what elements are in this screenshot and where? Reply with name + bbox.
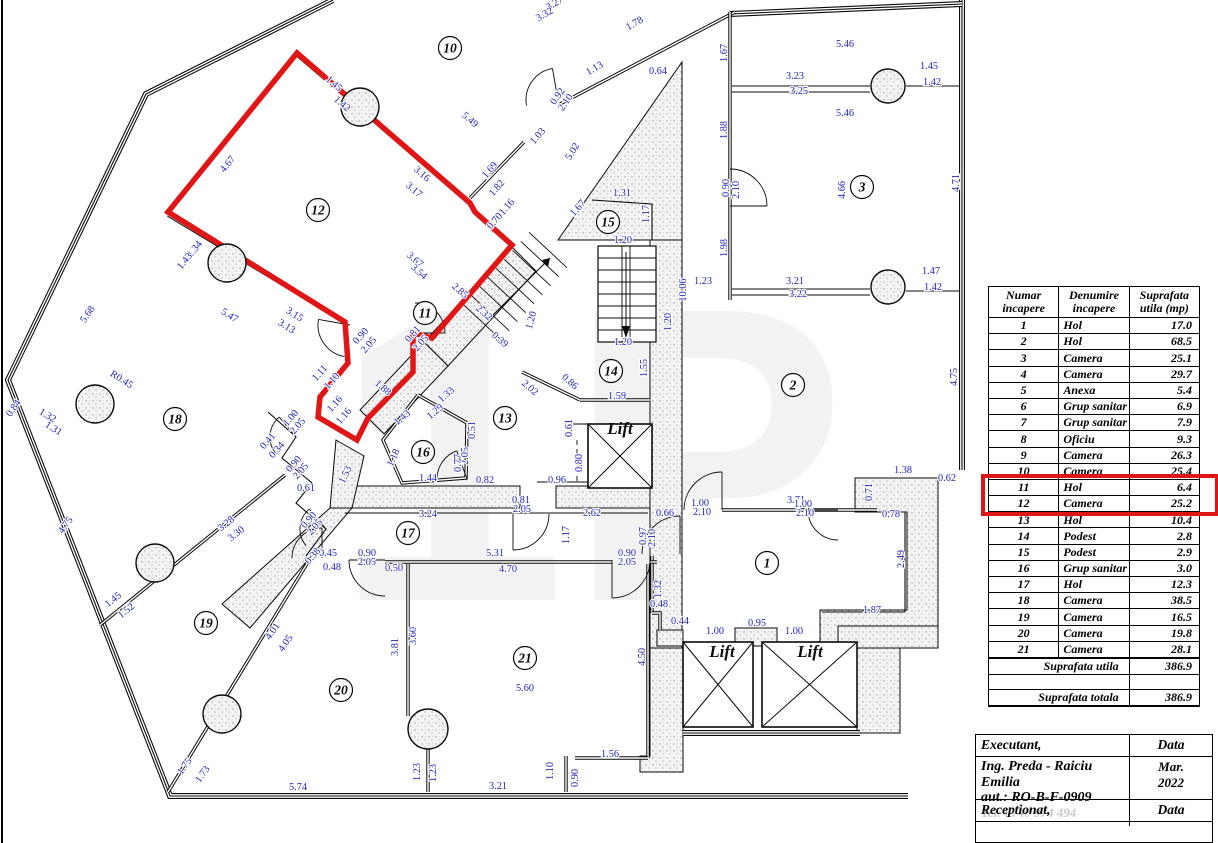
table-cell: 7 bbox=[989, 415, 1059, 431]
dimension-label: 1.23 bbox=[412, 763, 423, 781]
table-cell: 25.1 bbox=[1129, 350, 1199, 366]
dimension-label: 2.05 bbox=[358, 557, 376, 568]
dimension-label: 3.23 bbox=[786, 71, 804, 82]
dimension-label: 1.88 bbox=[719, 121, 730, 139]
table-cell: 10 bbox=[989, 463, 1059, 479]
receptionat-date-empty-cell bbox=[1130, 822, 1212, 826]
room-number: 12 bbox=[311, 203, 325, 218]
dimension-label: 0.77 bbox=[453, 454, 464, 472]
table-cell: 10.4 bbox=[1129, 512, 1199, 528]
dimension-label: 0.48 bbox=[650, 599, 668, 610]
dimension-label: 5.49 bbox=[459, 110, 480, 130]
table-total-row: Suprafata totala386.9 bbox=[989, 690, 1200, 707]
table-cell: Camera bbox=[1059, 609, 1129, 625]
dimension-label: 5.47 bbox=[219, 306, 240, 325]
dimension-label: 0.82 bbox=[476, 475, 494, 486]
table-cell: 16 bbox=[989, 560, 1059, 576]
table-cell: 13 bbox=[989, 512, 1059, 528]
dimension-label: 5.02 bbox=[563, 141, 582, 162]
table-cell: 14 bbox=[989, 528, 1059, 544]
lift-label: Lift bbox=[796, 642, 824, 661]
dimension-label: 0.50 bbox=[385, 563, 403, 574]
table-cell: Camera bbox=[1059, 366, 1129, 382]
table-cell: 9.3 bbox=[1129, 431, 1199, 447]
table-row: 4Camera29.7 bbox=[989, 366, 1200, 382]
table-cell: Camera bbox=[1059, 463, 1129, 479]
dimension-label: 1.17 bbox=[641, 205, 652, 223]
table-row: 20Camera19.8 bbox=[989, 625, 1200, 641]
dimension-label: 2.62 bbox=[583, 508, 601, 519]
dimension-label: 1.47 bbox=[922, 266, 940, 277]
table-row: 12Camera25.2 bbox=[989, 496, 1200, 512]
table-cell: Camera bbox=[1059, 641, 1129, 658]
dimension-label: 3.25 bbox=[790, 86, 808, 97]
dimension-label: 3.21 bbox=[786, 276, 804, 287]
dimension-label: 3.21 bbox=[489, 781, 507, 792]
dimension-label: 2.05 bbox=[513, 504, 531, 515]
dimension-label: 1.32 bbox=[653, 580, 664, 598]
dimension-label: 3.24 bbox=[419, 509, 437, 520]
date-value: Mar. 2022 bbox=[1130, 757, 1212, 799]
dimension-label: 3.17 bbox=[403, 180, 424, 200]
dimension-label: 0.61 bbox=[297, 483, 315, 494]
dimension-label: 1.78 bbox=[624, 15, 645, 34]
table-cell: 2 bbox=[989, 334, 1059, 350]
dimension-label: 4.50 bbox=[637, 648, 648, 666]
table-row: 5Anexa5.4 bbox=[989, 382, 1200, 398]
table-cell: 11 bbox=[989, 479, 1059, 495]
table-cell: Hol bbox=[1059, 512, 1129, 528]
dimension-label: 0.61 bbox=[564, 419, 575, 437]
dimension-label: 2.10 bbox=[647, 529, 658, 547]
room-number: 2 bbox=[789, 378, 797, 393]
floorplan-page: 1P1.451.425.493.163.174.671.341.433.153.… bbox=[0, 0, 1218, 843]
dimension-label: 1.20 bbox=[614, 337, 632, 348]
dimension-label: 0.96 bbox=[548, 475, 566, 486]
dimension-label: 1.17 bbox=[561, 526, 572, 544]
room-number: 17 bbox=[401, 526, 416, 541]
room-number: 18 bbox=[168, 412, 182, 427]
table-cell: 17.0 bbox=[1129, 318, 1199, 334]
dimension-label: 10.06 bbox=[678, 278, 689, 301]
dimension-label: 0.78 bbox=[882, 509, 900, 520]
table-row: 15Podest2.9 bbox=[989, 544, 1200, 560]
dimension-label: 5.60 bbox=[516, 683, 534, 694]
table-cell: 9 bbox=[989, 447, 1059, 463]
lift-label: Lift bbox=[708, 642, 736, 661]
title-block: Executant, Data Ing. Preda - Raiciu Emil… bbox=[975, 734, 1213, 843]
table-cell: 3.0 bbox=[1129, 560, 1199, 576]
dimension-label: 2.49 bbox=[896, 550, 907, 568]
dimension-label: 1.75 bbox=[175, 756, 194, 777]
dimension-label: 4.71 bbox=[951, 174, 962, 192]
table-cell: 1 bbox=[989, 318, 1059, 334]
dimension-label: 1.31 bbox=[43, 419, 64, 438]
table-cell: 7.9 bbox=[1129, 415, 1199, 431]
table-header-0: Numarincapere bbox=[989, 287, 1059, 318]
table-row: 7Grup sanitar7.9 bbox=[989, 415, 1200, 431]
dimension-label: 1.82 bbox=[487, 178, 507, 199]
dimension-label: 0.90 bbox=[570, 769, 581, 787]
table-cell: Camera bbox=[1059, 625, 1129, 641]
table-header-2: Suprafatautila (mp) bbox=[1129, 287, 1199, 318]
dimension-label: 0.64 bbox=[649, 66, 667, 77]
table-cell: Camera bbox=[1059, 593, 1129, 609]
dimension-label: 1.45 bbox=[920, 61, 938, 72]
table-cell: 38.5 bbox=[1129, 593, 1199, 609]
dimension-label: 0.80 bbox=[574, 454, 585, 472]
table-cell: Podest bbox=[1059, 544, 1129, 560]
table-cell: Camera bbox=[1059, 496, 1129, 512]
executant-label: Executant, bbox=[976, 735, 1130, 756]
dimension-label: 1.55 bbox=[639, 359, 650, 377]
table-row: 17Hol12.3 bbox=[989, 577, 1200, 593]
dimension-label: 1.03 bbox=[528, 126, 548, 147]
dimension-label: 1.23 bbox=[694, 276, 712, 287]
table-header-1: Denumireincapere bbox=[1059, 287, 1129, 318]
table-cell: Oficiu bbox=[1059, 431, 1129, 447]
table-cell: 19.8 bbox=[1129, 625, 1199, 641]
table-row: 1Hol17.0 bbox=[989, 318, 1200, 334]
table-cell: 26.3 bbox=[1129, 447, 1199, 463]
table-row: 8Oficiu9.3 bbox=[989, 431, 1200, 447]
table-cell: Hol bbox=[1059, 479, 1129, 495]
dimension-label: 1.00 bbox=[706, 626, 724, 637]
dimension-label: 1.87 bbox=[863, 605, 881, 616]
dimension-label: 4.66 bbox=[837, 181, 848, 199]
dimension-label: 1.20 bbox=[663, 313, 674, 331]
table-cell: Hol bbox=[1059, 318, 1129, 334]
room-number: 11 bbox=[419, 306, 432, 321]
table-row: 6Grup sanitar6.9 bbox=[989, 398, 1200, 414]
table-cell: Hol bbox=[1059, 334, 1129, 350]
table-cell: 5 bbox=[989, 382, 1059, 398]
dimension-label: 2.10 bbox=[796, 508, 814, 519]
dimension-label: 1.52 bbox=[116, 601, 137, 621]
room-number: 19 bbox=[199, 616, 213, 631]
dimension-label: 0.71 bbox=[864, 483, 875, 501]
dimension-label: 0.66 bbox=[656, 508, 674, 519]
room-number: 21 bbox=[517, 651, 532, 666]
engineer-name: Ing. Preda - Raiciu Emilia bbox=[981, 759, 1124, 790]
dimension-label: 1.20 bbox=[614, 235, 632, 246]
table-row: 3Camera25.1 bbox=[989, 350, 1200, 366]
dimension-label: 2.10 bbox=[731, 181, 742, 199]
room-number: 15 bbox=[601, 215, 615, 230]
dimension-label: 5.74 bbox=[289, 782, 307, 793]
dimension-label: 3.81 bbox=[390, 638, 401, 656]
table-cell: 8 bbox=[989, 431, 1059, 447]
room-number: 1 bbox=[764, 556, 771, 571]
dimension-label: 1.23 bbox=[428, 764, 439, 782]
room-number: 13 bbox=[498, 411, 512, 426]
dimension-label: 4.75 bbox=[949, 368, 960, 386]
table-row: 16Grup sanitar3.0 bbox=[989, 560, 1200, 576]
table-row: 18Camera38.5 bbox=[989, 593, 1200, 609]
table-cell: 28.1 bbox=[1129, 641, 1199, 658]
table-row: 19Camera16.5 bbox=[989, 609, 1200, 625]
table-cell: 68.5 bbox=[1129, 334, 1199, 350]
table-row: 2Hol68.5 bbox=[989, 334, 1200, 350]
table-cell: 16.5 bbox=[1129, 609, 1199, 625]
table-row: 9Camera26.3 bbox=[989, 447, 1200, 463]
table-cell: Anexa bbox=[1059, 382, 1129, 398]
table-cell: 18 bbox=[989, 593, 1059, 609]
table-row: 21Camera28.1 bbox=[989, 641, 1200, 658]
table-cell: 4 bbox=[989, 366, 1059, 382]
table-cell: 25.4 bbox=[1129, 463, 1199, 479]
dimension-label: 5.46 bbox=[836, 39, 854, 50]
table-row: 11Hol6.4 bbox=[989, 479, 1200, 495]
room-number: 10 bbox=[443, 41, 457, 56]
table-cell: Grup sanitar bbox=[1059, 398, 1129, 414]
dimension-label: 4.67 bbox=[218, 154, 238, 175]
dimension-label: 1.42 bbox=[924, 282, 942, 293]
table-cell: 2.9 bbox=[1129, 544, 1199, 560]
dimension-label: 1.13 bbox=[584, 60, 605, 79]
dimension-label: R0.45 bbox=[108, 369, 135, 392]
table-cell: 15 bbox=[989, 544, 1059, 560]
receptionat-empty-cell bbox=[976, 822, 1130, 826]
data-label-2: Data bbox=[1130, 800, 1212, 821]
data-label-1: Data bbox=[1130, 735, 1212, 756]
receptionat-label: Receptionat, bbox=[976, 800, 1130, 821]
room-number: 14 bbox=[604, 364, 618, 379]
dimension-label: 1.56 bbox=[601, 749, 619, 760]
table-cell: 6 bbox=[989, 398, 1059, 414]
table-cell: 5.4 bbox=[1129, 382, 1199, 398]
table-cell: 6.9 bbox=[1129, 398, 1199, 414]
dimension-label: 0.95 bbox=[748, 618, 766, 629]
dimension-label: 1.00 bbox=[785, 626, 803, 637]
dimension-label: 3.22 bbox=[789, 289, 807, 300]
dimension-label: 4.05 bbox=[276, 633, 295, 654]
table-cell: 25.2 bbox=[1129, 496, 1199, 512]
dimension-label: 0.51 bbox=[467, 421, 478, 439]
dimension-label: 1.44 bbox=[419, 473, 437, 484]
table-cell: Podest bbox=[1059, 528, 1129, 544]
dimension-label: 0.48 bbox=[323, 562, 341, 573]
table-cell: Camera bbox=[1059, 447, 1129, 463]
dimension-label: 4.01 bbox=[263, 621, 282, 642]
table-header-row: NumarincapereDenumireincapereSuprafataut… bbox=[989, 287, 1200, 318]
table-cell: 12 bbox=[989, 496, 1059, 512]
table-cell: 29.7 bbox=[1129, 366, 1199, 382]
table-cell: 21 bbox=[989, 641, 1059, 658]
room-number: 3 bbox=[858, 180, 866, 195]
table-cell: 3 bbox=[989, 350, 1059, 366]
dimension-label: 5.68 bbox=[78, 304, 97, 325]
table-cell: 12.3 bbox=[1129, 577, 1199, 593]
table-cell: Grup sanitar bbox=[1059, 415, 1129, 431]
dimension-label: 1.42 bbox=[923, 77, 941, 88]
table-cell: 17 bbox=[989, 577, 1059, 593]
room-number: 20 bbox=[333, 683, 348, 698]
dimension-label: 2.05 bbox=[618, 557, 636, 568]
dimension-label: 1.73 bbox=[193, 764, 212, 785]
table-row: 10Camera25.4 bbox=[989, 463, 1200, 479]
table-cell: Grup sanitar bbox=[1059, 560, 1129, 576]
table-row: 14Podest2.8 bbox=[989, 528, 1200, 544]
dimension-label: 1.67 bbox=[719, 44, 730, 62]
table-cell: 6.4 bbox=[1129, 479, 1199, 495]
table-cell: Camera bbox=[1059, 350, 1129, 366]
table-cell: 19 bbox=[989, 609, 1059, 625]
dimension-label: 0.62 bbox=[938, 473, 956, 484]
dimension-label: 1.10 bbox=[545, 762, 556, 780]
dimension-label: 5.46 bbox=[836, 108, 854, 119]
dimension-label: 1.31 bbox=[613, 188, 631, 199]
room-schedule-table: NumarincapereDenumireincapereSuprafataut… bbox=[988, 286, 1200, 707]
room-number: 16 bbox=[416, 445, 430, 460]
dimension-label: 1.69 bbox=[480, 160, 500, 181]
table-cell: Hol bbox=[1059, 577, 1129, 593]
table-spacer-row bbox=[989, 675, 1200, 690]
dimension-label: 2.10 bbox=[693, 507, 711, 518]
dimension-label: 3.60 bbox=[408, 627, 419, 645]
dimension-label: 1.38 bbox=[894, 465, 912, 476]
dimension-label: 0.44 bbox=[671, 616, 689, 627]
table-cell: 2.8 bbox=[1129, 528, 1199, 544]
table-row: 13Hol10.4 bbox=[989, 512, 1200, 528]
dimension-label: 1.98 bbox=[719, 239, 730, 257]
lift-label: Lift bbox=[606, 419, 634, 438]
table-total-row: Suprafata utila386.9 bbox=[989, 658, 1200, 675]
dimension-label: 1.59 bbox=[608, 391, 626, 402]
dimension-label: 5.31 bbox=[486, 548, 504, 559]
table-cell: 20 bbox=[989, 625, 1059, 641]
dimension-label: 4.70 bbox=[499, 564, 517, 575]
